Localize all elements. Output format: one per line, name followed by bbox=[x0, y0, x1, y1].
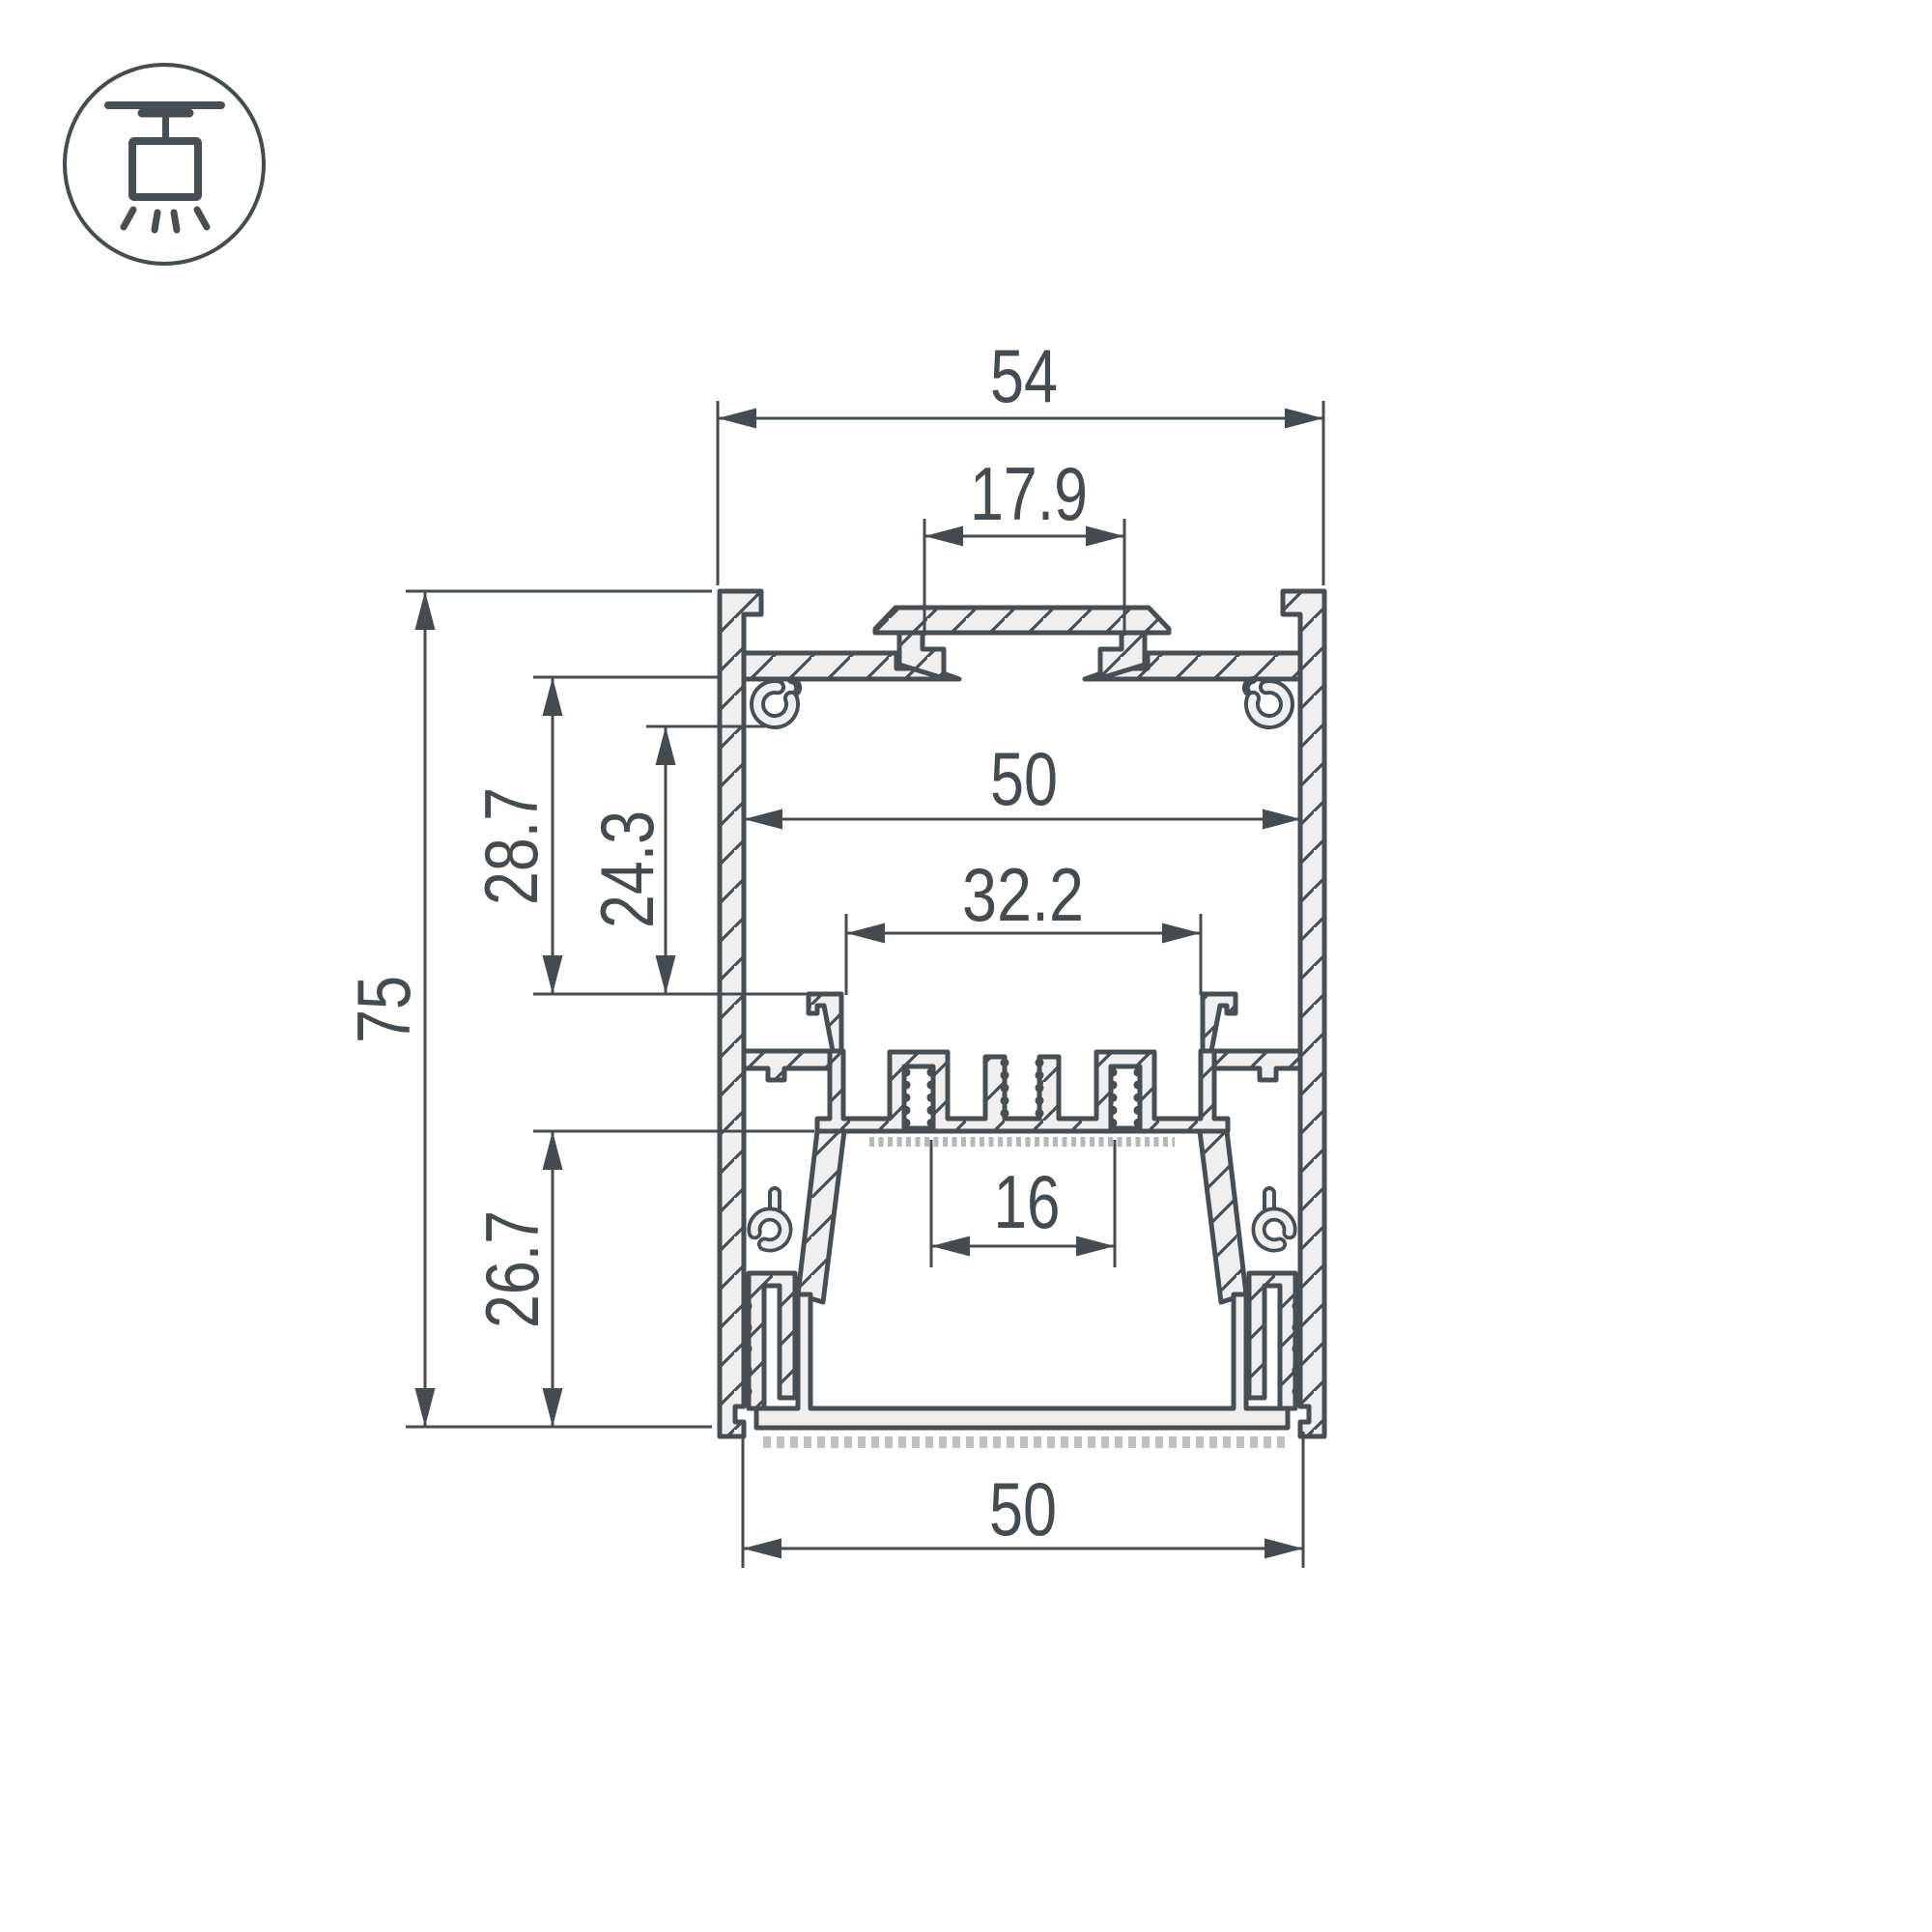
svg-text:26.7: 26.7 bbox=[469, 1210, 554, 1328]
svg-text:17.9: 17.9 bbox=[970, 451, 1088, 536]
svg-text:75: 75 bbox=[341, 976, 426, 1043]
svg-text:50: 50 bbox=[989, 1466, 1057, 1551]
svg-text:16: 16 bbox=[994, 1159, 1061, 1244]
svg-text:54: 54 bbox=[990, 333, 1058, 418]
svg-text:28.7: 28.7 bbox=[469, 787, 554, 905]
svg-text:24.3: 24.3 bbox=[584, 810, 669, 928]
svg-text:32.2: 32.2 bbox=[962, 852, 1084, 937]
svg-text:50: 50 bbox=[990, 736, 1058, 821]
